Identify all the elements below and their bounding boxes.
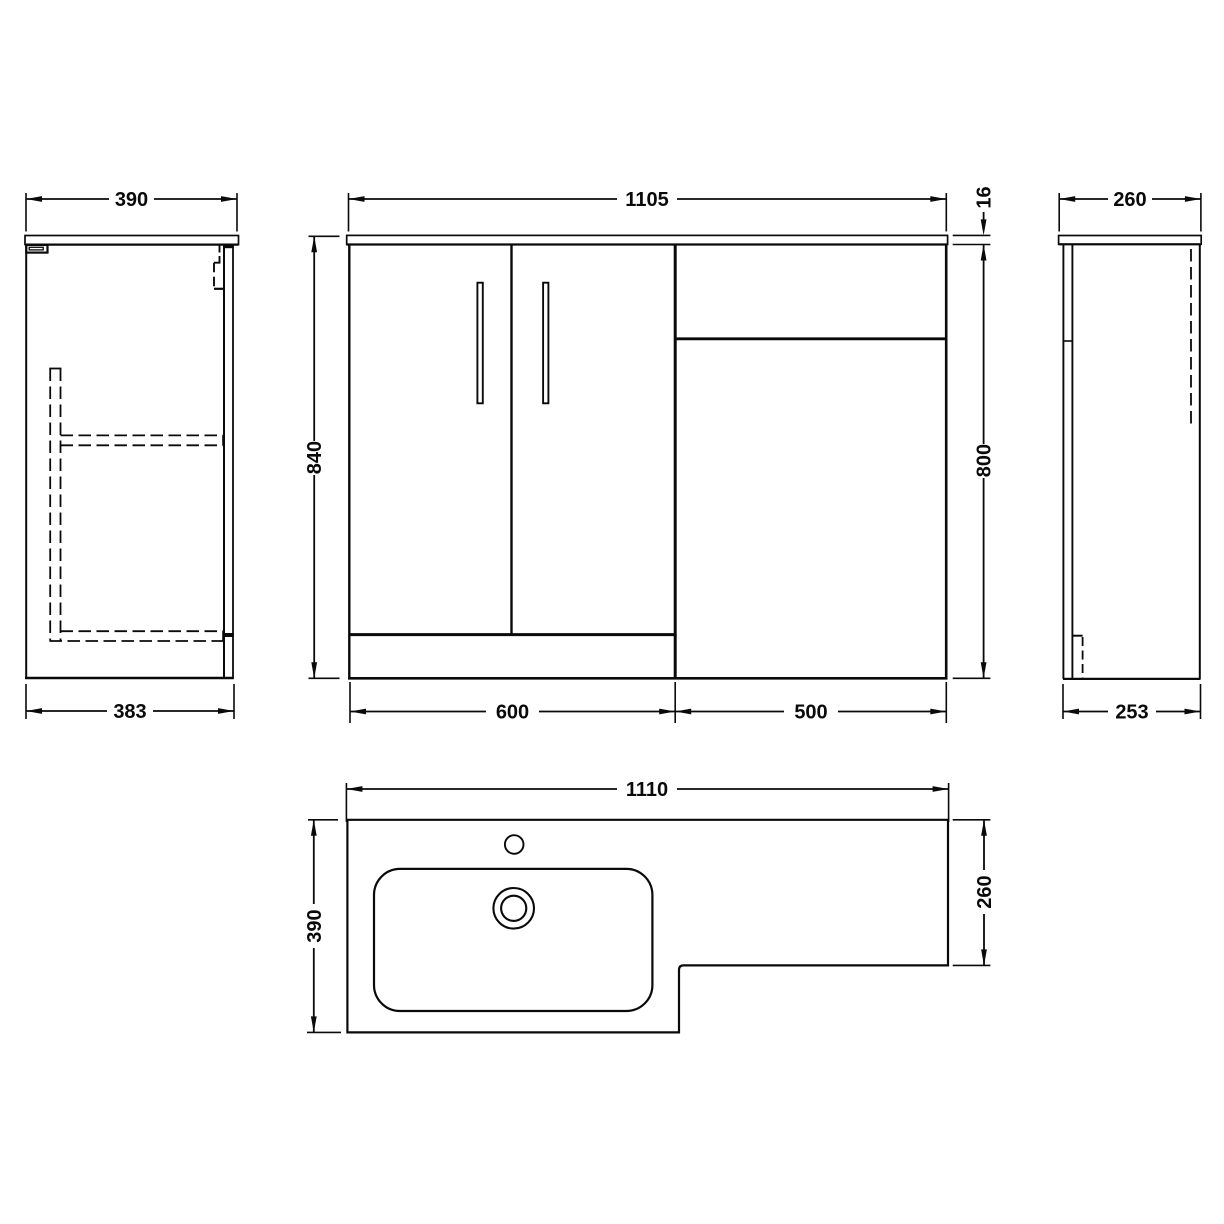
svg-text:390: 390 [115, 189, 148, 211]
svg-text:260: 260 [974, 875, 996, 908]
svg-text:1110: 1110 [626, 779, 668, 801]
svg-text:500: 500 [794, 702, 827, 724]
svg-text:390: 390 [304, 909, 326, 942]
svg-text:253: 253 [1115, 702, 1148, 724]
svg-text:383: 383 [113, 701, 146, 723]
svg-text:1105: 1105 [625, 189, 668, 211]
svg-text:800: 800 [974, 444, 996, 477]
svg-text:840: 840 [304, 441, 326, 474]
svg-text:260: 260 [1113, 189, 1146, 211]
svg-text:600: 600 [496, 702, 529, 724]
svg-text:16: 16 [974, 186, 996, 208]
